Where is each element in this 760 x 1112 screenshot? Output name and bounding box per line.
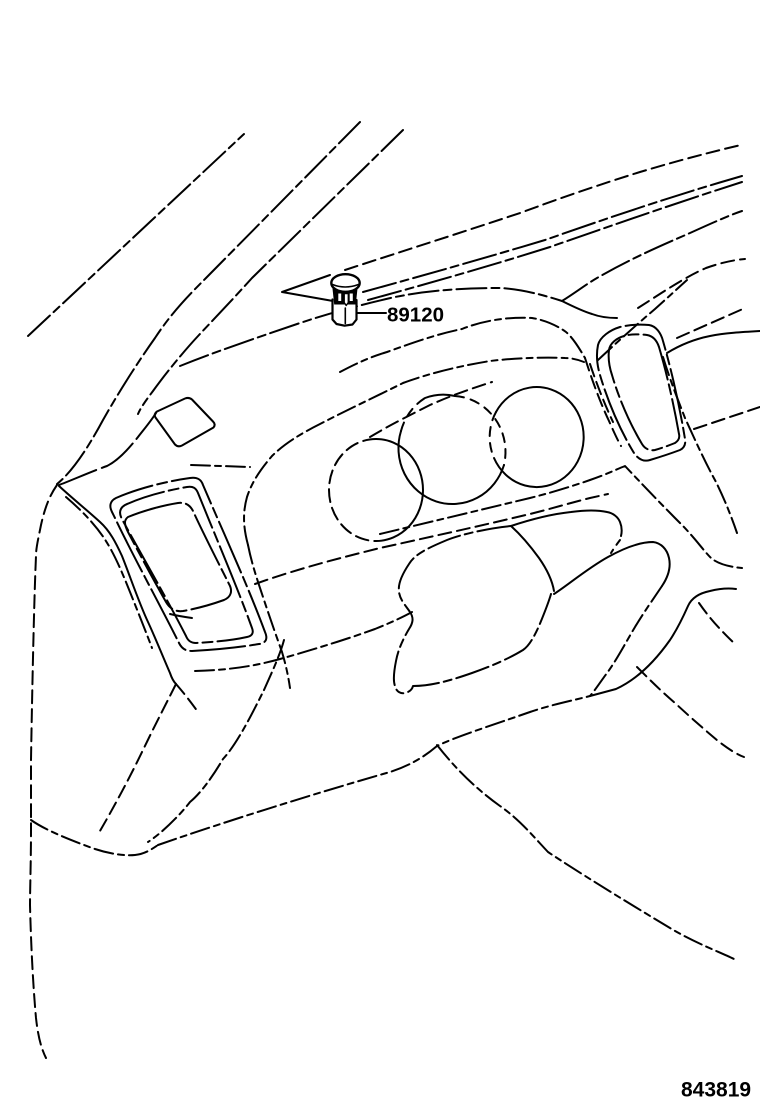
svg-text:89120: 89120: [387, 304, 444, 327]
svg-text:843819: 843819: [681, 1079, 751, 1102]
